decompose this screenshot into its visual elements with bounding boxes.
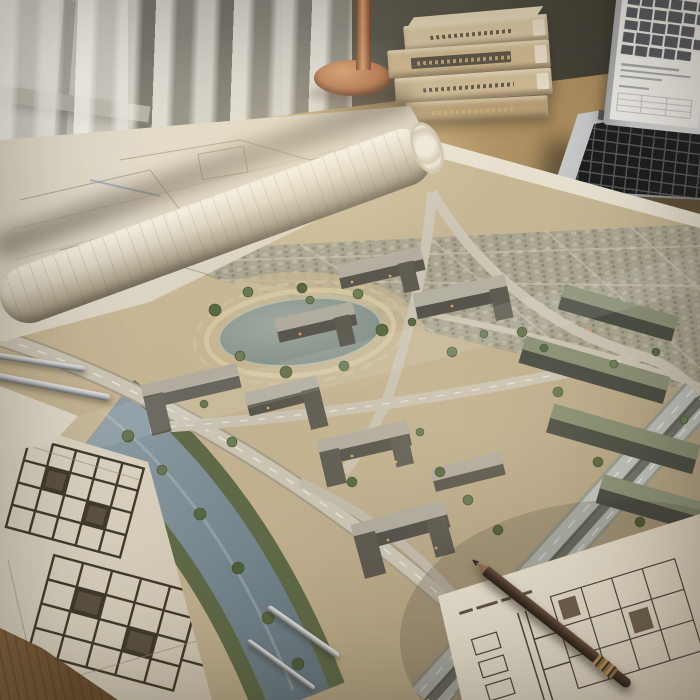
desk-scene xyxy=(0,0,700,700)
